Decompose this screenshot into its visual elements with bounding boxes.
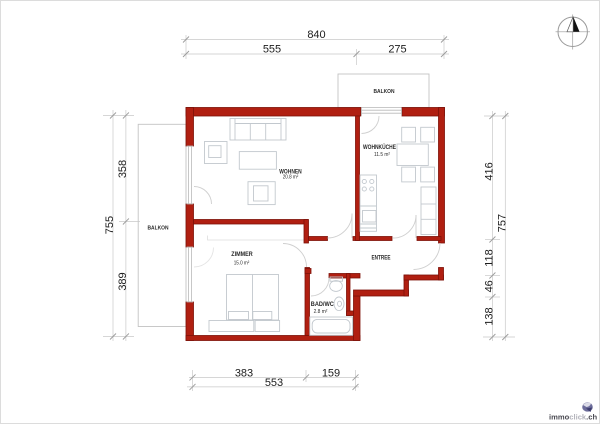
svg-text:ENTREE: ENTREE xyxy=(372,256,391,262)
svg-text:2.8 m²: 2.8 m² xyxy=(314,309,328,315)
svg-text:383: 383 xyxy=(235,367,253,379)
svg-text:ZIMMER: ZIMMER xyxy=(231,252,253,258)
svg-text:WOHNKÜCHE: WOHNKÜCHE xyxy=(363,144,396,151)
svg-text:BALKON: BALKON xyxy=(374,89,395,95)
svg-text:20.8 m²: 20.8 m² xyxy=(283,175,299,181)
svg-text:416: 416 xyxy=(483,162,495,180)
svg-text:757: 757 xyxy=(496,214,508,232)
svg-text:555: 555 xyxy=(263,44,281,56)
svg-text:BALKON: BALKON xyxy=(148,226,169,232)
svg-text:159: 159 xyxy=(322,367,340,379)
svg-text:11.5 m²: 11.5 m² xyxy=(374,152,390,158)
svg-text:15.0 m²: 15.0 m² xyxy=(234,260,250,266)
svg-text:755: 755 xyxy=(104,216,116,234)
svg-text:118: 118 xyxy=(483,249,495,267)
svg-text:840: 840 xyxy=(307,29,325,41)
svg-text:immoclick.ch: immoclick.ch xyxy=(549,413,597,422)
svg-text:389: 389 xyxy=(117,272,129,290)
svg-text:138: 138 xyxy=(483,307,495,325)
svg-text:BAD/WC: BAD/WC xyxy=(311,302,335,308)
svg-text:46: 46 xyxy=(483,280,495,292)
svg-text:358: 358 xyxy=(117,160,129,178)
svg-text:553: 553 xyxy=(265,377,283,389)
svg-text:275: 275 xyxy=(388,44,406,56)
